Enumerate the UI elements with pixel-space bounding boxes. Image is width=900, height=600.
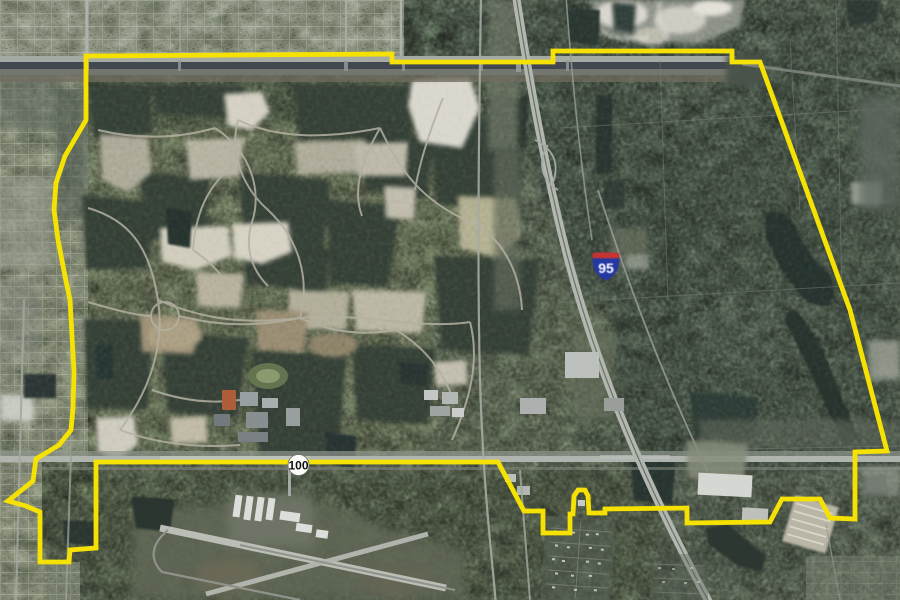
svg-text:95: 95: [598, 260, 614, 276]
svg-text:100: 100: [288, 458, 308, 472]
